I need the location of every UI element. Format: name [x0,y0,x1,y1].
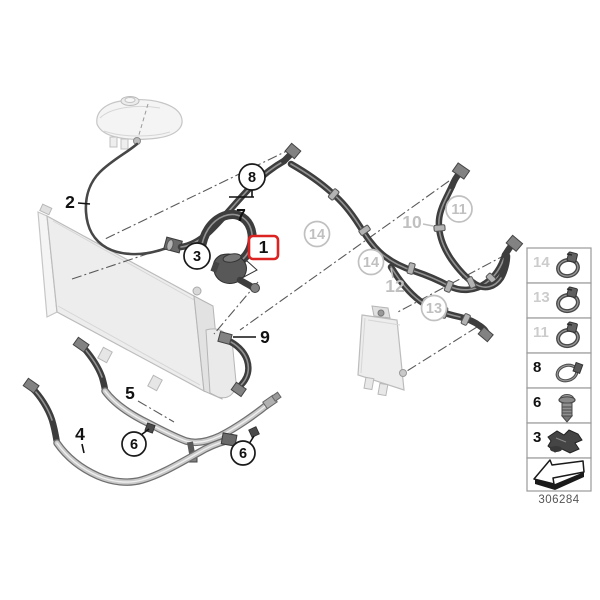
sidebar-item-6[interactable]: 6 [527,388,591,423]
sidebar-footer-arrow [527,458,591,491]
oil-cooler [358,306,407,396]
svg-text:12: 12 [385,276,405,296]
svg-text:8: 8 [248,170,256,186]
sidebar-item-8[interactable]: 8 [527,353,591,388]
svg-text:6: 6 [533,394,541,411]
callout-13[interactable]: 13 [422,296,447,321]
svg-text:11: 11 [451,202,466,218]
svg-text:3: 3 [193,249,201,265]
sidebar-item-11[interactable]: 11 [527,318,591,353]
callout-4[interactable]: 4 [75,424,85,453]
oil-cooler-side-port [400,370,407,377]
svg-text:6: 6 [130,437,138,453]
svg-text:3: 3 [533,429,541,446]
svg-text:11: 11 [533,324,549,341]
sidebar-item-14[interactable]: 14 [527,248,591,283]
callout-14a[interactable]: 14 [305,222,330,247]
svg-text:7: 7 [236,205,246,225]
sidebar-legend: 14 13 11 [527,248,591,506]
parts-diagram-canvas: 2 8 7 3 1 9 5 4 [0,0,600,600]
svg-text:10: 10 [402,212,422,232]
callout-3[interactable]: 3 [184,243,210,269]
retaining-clip-icon [548,430,582,453]
sidebar-item-3[interactable]: 3 [527,423,591,458]
svg-text:9: 9 [260,327,270,347]
callout-14b[interactable]: 14 [359,250,384,275]
svg-text:14: 14 [363,255,379,271]
vent-hose-7 [181,143,301,247]
callout-10[interactable]: 10 [402,212,433,232]
svg-text:14: 14 [533,254,550,271]
cooling-hoses-diagram: 2 8 7 3 1 9 5 4 [0,0,600,600]
svg-text:13: 13 [426,301,442,317]
svg-text:13: 13 [533,289,550,306]
callout-5[interactable]: 5 [125,383,135,403]
svg-text:6: 6 [239,446,247,462]
svg-text:1: 1 [259,237,269,257]
vent-hose-2 [86,144,174,254]
oil-cooler-top-port [378,310,384,316]
svg-text:4: 4 [75,424,85,444]
svg-text:14: 14 [309,227,325,243]
callout-8[interactable]: 8 [239,164,265,190]
diagram-part-number: 306284 [538,494,579,506]
pipe-clip [249,427,260,438]
svg-text:8: 8 [533,359,541,376]
svg-text:2: 2 [65,192,75,212]
sidebar-item-13[interactable]: 13 [527,283,591,318]
callout-11[interactable]: 11 [446,196,472,222]
callout-1-highlighted[interactable]: 1 [249,236,278,259]
callout-6a[interactable]: 6 [122,429,149,456]
expansion-tank [97,97,182,150]
svg-text:5: 5 [125,383,135,403]
